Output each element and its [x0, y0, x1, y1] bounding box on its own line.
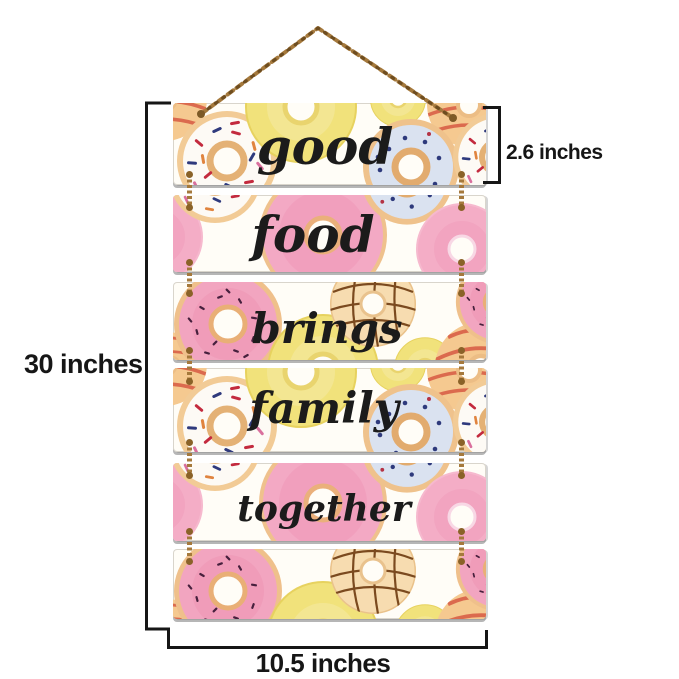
- connector-chain: [187, 174, 192, 208]
- plank-word: brings: [252, 304, 403, 353]
- plank-word: good: [257, 117, 394, 176]
- plank-brings: brings: [173, 282, 486, 360]
- connector-chain: [459, 350, 464, 382]
- connector-chain: [187, 442, 192, 476]
- connector-chain: [459, 262, 464, 294]
- plank-family: family: [173, 368, 486, 452]
- plank-good: good: [173, 103, 486, 185]
- plank-brings-artwork: brings: [173, 282, 486, 360]
- plank-together-artwork: together: [173, 463, 486, 541]
- plank-height-label: 2.6 inches: [506, 142, 603, 163]
- product-dimension-image: good food brings family together: [0, 0, 679, 679]
- connector-chain: [187, 350, 192, 382]
- plank-blank-artwork: [173, 549, 486, 619]
- plank-word: together: [237, 488, 413, 530]
- connector-chain: [459, 531, 464, 562]
- height-label: 30 inches: [24, 351, 142, 378]
- plank-food: food: [173, 195, 486, 272]
- connector-chain: [187, 262, 192, 294]
- plank-word: family: [246, 384, 402, 434]
- plank-family-artwork: family: [173, 368, 486, 452]
- connector-chain: [459, 174, 464, 208]
- plank-word: food: [248, 205, 374, 264]
- plank-food-artwork: food: [173, 195, 486, 272]
- connector-chain: [187, 531, 192, 562]
- width-label: 10.5 inches: [223, 650, 423, 676]
- donut-pattern: [173, 549, 486, 619]
- connector-chain: [459, 442, 464, 476]
- plank-blank: [173, 549, 486, 619]
- plank-good-artwork: good: [173, 103, 486, 185]
- plank-together: together: [173, 463, 486, 541]
